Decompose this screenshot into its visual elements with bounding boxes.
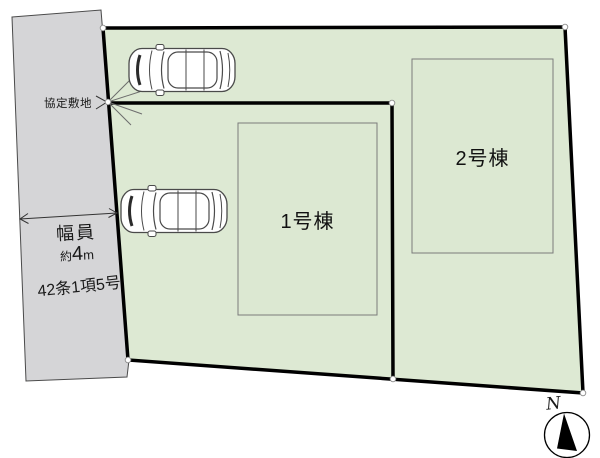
road-width-number: 4 — [71, 243, 83, 266]
north-label: N — [545, 393, 562, 414]
road-width-value: 約4m — [42, 241, 111, 268]
building-1-label: 1号棟 — [238, 123, 377, 315]
site-plan-canvas: 協定敷地 幅員 約4m 42条1項5号 1号棟 2号棟 N — [0, 0, 600, 458]
car-2-icon — [121, 186, 227, 237]
building-2-label: 2号棟 — [412, 59, 553, 253]
road-width-unit: m — [83, 247, 95, 263]
compass-north-icon — [545, 413, 590, 458]
easement-label: 協定敷地 — [38, 95, 92, 111]
car-1-icon — [129, 45, 235, 96]
road-width-prefix: 約 — [60, 249, 73, 264]
